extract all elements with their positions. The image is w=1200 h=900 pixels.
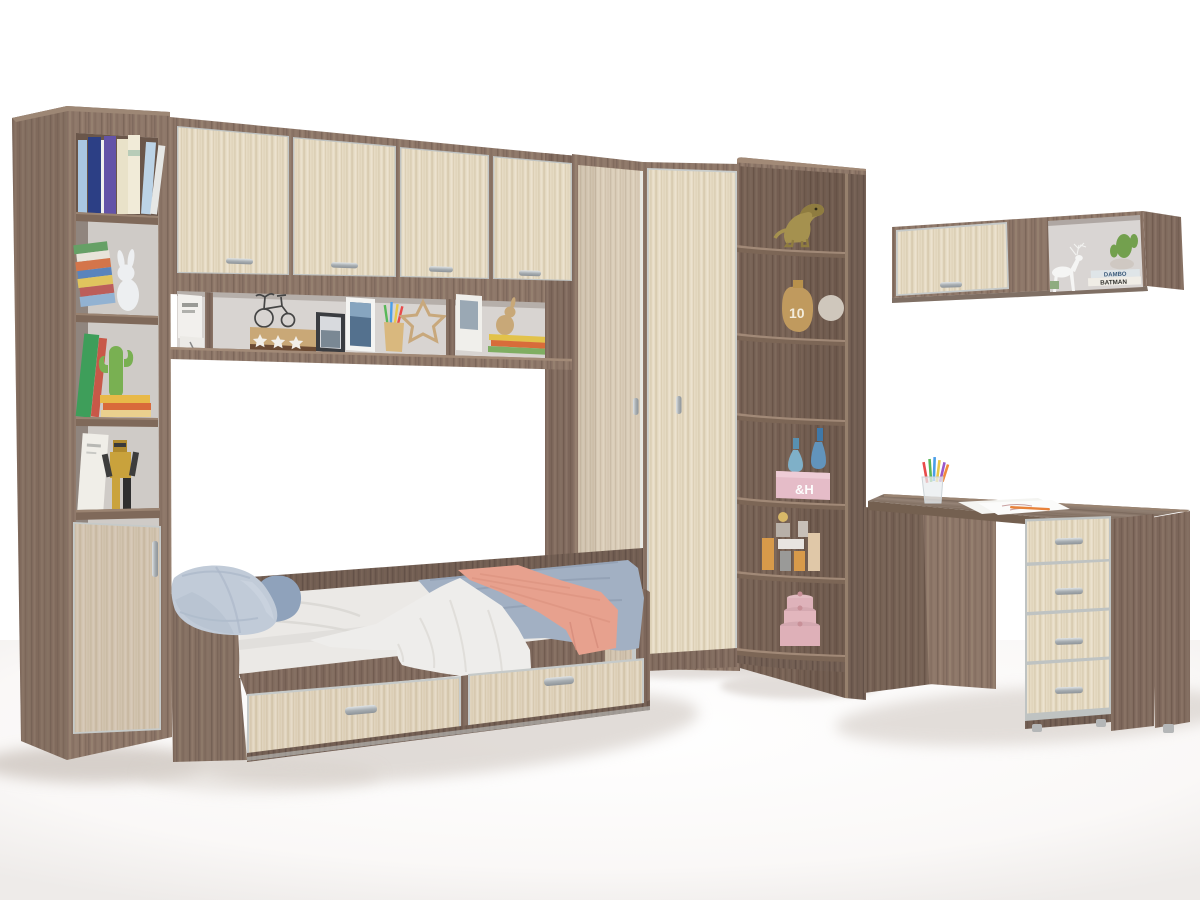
svg-text:10: 10 [789,305,805,321]
svg-text:&H: &H [795,482,814,497]
svg-text:BATMAN: BATMAN [1100,279,1127,287]
